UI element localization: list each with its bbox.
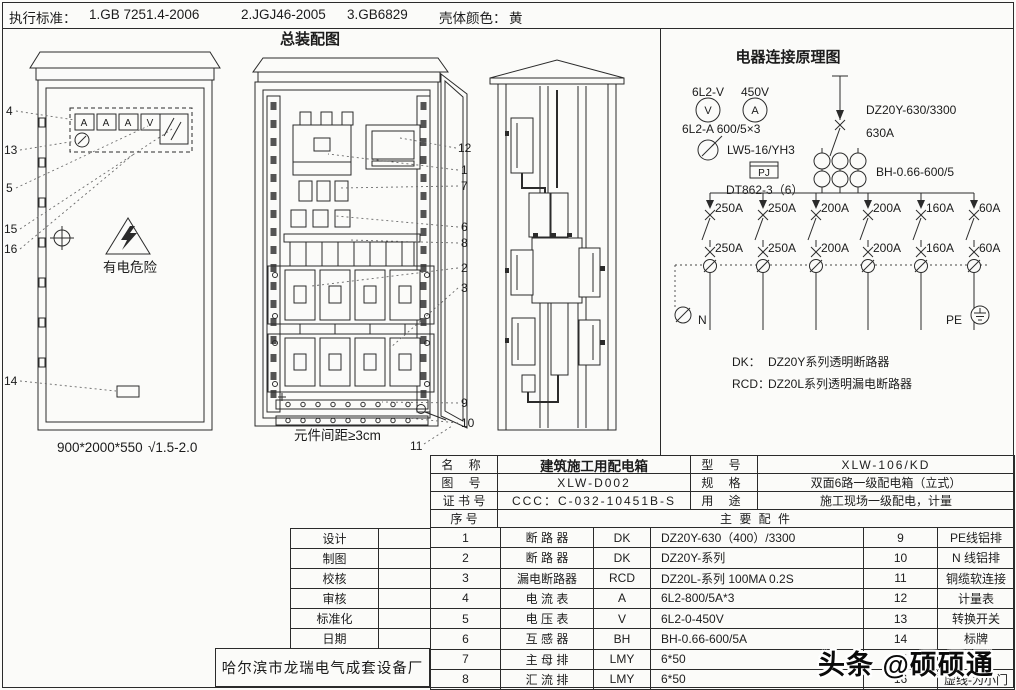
schematic-legend: DK： DZ20Y系列透明断路器 RCD： DZ20L系列透明漏电断路器 [732,354,912,391]
part-no2: 10 [864,548,938,568]
n-label: N [698,313,707,327]
engineering-drawing-sheet: 执行标准： 1.GB 7251.4-2006 2.JGJ46-2005 3.GB… [0,0,1016,690]
main-breaker [293,125,351,175]
title-block-info: 名 称 建筑施工用配电箱 型 号 XLW-106/KD 图 号 XLW-D002… [430,455,1015,510]
branch-rating-bottom: 250A [768,241,796,255]
callout-3: 3 [461,281,468,295]
changeover-switch-model: LW5-16/YH3 [727,143,795,157]
assembly-drawing: 总装配图 A A A V [0,28,660,455]
drawing-number: XLW-D002 [498,474,691,492]
part-no: 5 [431,609,501,629]
energy-meter-model: DT862-3（6） [726,183,803,197]
part-no: 7 [431,650,501,670]
admin-label: 标准化 [291,609,379,629]
info-label: 型 号 [691,456,758,474]
voltmeter-letter: V [704,105,712,117]
branch-3: 200A 200A [808,193,849,330]
product-name: 建筑施工用配电箱 [498,456,691,474]
callouts-left: 4 13 5 15 16 14 [4,104,172,391]
usage: 施工现场一级配电，计量 [758,492,1015,510]
branch-rating-top: 250A [768,201,796,215]
part-spec: DZ20Y-系列 [651,548,864,568]
component-spacing-note: 元件间距≥3cm [294,428,381,443]
part-no2: 11 [864,569,938,589]
standard-3: 3.GB6829 [347,7,408,22]
part-code: V [594,609,651,629]
part-code: DK [594,528,651,548]
part-spec: 6L2-800/5A*3 [651,589,864,609]
part-name2: 计量表 [938,589,1015,609]
main-breaker-model: DZ20Y-630/3300 [866,103,957,117]
branch-4: 200A 200A [860,193,901,330]
part-no: 8 [431,670,501,690]
branch-rating-top: 250A [715,201,743,215]
part-no: 6 [431,629,501,649]
branch-rating-bottom: 200A [873,241,901,255]
main-breaker-rating: 630A [866,126,894,140]
branch-rating-top: 160A [926,201,954,215]
part-no2: 12 [864,589,938,609]
info-label: 规 格 [691,474,758,492]
part-spec: 6L2-0-450V [651,609,864,629]
voltmeter-label: V [147,118,154,129]
door-lock [50,226,74,250]
branch-rating-top: 200A [821,201,849,215]
part-name2: 转换开关 [938,609,1015,629]
callout-7: 7 [461,179,468,193]
part-name2: PE线铝排 [938,528,1015,548]
branch-rating-bottom: 160A [926,241,954,255]
admin-label: 制图 [291,549,379,569]
admin-value [379,549,431,569]
part-spec: DZ20Y-630（400）/3300 [651,528,864,548]
part-no: 4 [431,589,501,609]
callout-6: 6 [461,220,468,234]
part-code: LMY [594,670,651,690]
admin-label: 日期 [291,629,379,649]
part-name: 电 流 表 [501,589,594,609]
admin-label: 审核 [291,589,379,609]
assembly-title: 总装配图 [280,30,340,48]
part-name: 汇 流 排 [501,670,594,690]
signature-block: 设计 制图 校核 审核 标准化 日期 [290,528,431,649]
callout-15: 15 [4,222,18,236]
legend-rcd-value: DZ20L系列透明漏电断路器 [768,376,912,391]
voltmeter-model: 6L2-V [692,85,724,99]
ammeter-3-label: A [125,118,132,129]
standards-label: 执行标准： [9,7,77,27]
branch-rating-bottom: 60A [979,241,1000,255]
part-code: BH [594,629,651,649]
busbar-comb [284,234,420,242]
sheet-thickness: √1.5-2.0 [148,440,197,455]
branch-2: 250A 250A [755,193,796,330]
model-number: XLW-106/KD [758,456,1015,474]
ammeter-2-label: A [103,118,110,129]
admin-value [379,589,431,609]
schematic-title: 电器连接原理图 [735,48,840,66]
specification: 双面6路一级配电箱（立式） [758,474,1015,492]
standard-2: 2.JGJ46-2005 [241,7,326,22]
admin-value [379,529,431,549]
ammeter-1-label: A [81,118,88,129]
electrical-schematic: 电器连接原理图 6L2-V 450V V A 6L2-A 600/5×3 LW5… [660,28,1016,455]
branch-rating-top: 60A [979,201,1000,215]
callout-10: 10 [461,416,475,430]
part-no: 1 [431,528,501,548]
nameplate [117,386,139,397]
cabinet-dimensions: 900*2000*550 [57,440,143,455]
callout-14: 14 [4,374,18,388]
part-name: 电 压 表 [501,609,594,629]
part-name: 断 路 器 [501,528,594,548]
admin-value [379,569,431,589]
branch-rating-bottom: 200A [821,241,849,255]
shell-color-value: 黄 [509,7,523,27]
standards-header: 执行标准： 1.GB 7251.4-2006 2.JGJ46-2005 3.GB… [3,3,1013,29]
panel-meters-symbols: 6L2-V 450V V A 6L2-A 600/5×3 LW5-16/YH3 … [682,85,803,197]
part-no: 3 [431,569,501,589]
branch-rating-top: 200A [873,201,901,215]
electric-danger-sign [106,218,150,254]
warning-text: 有电危险 [103,260,157,275]
callout-1: 1 [461,163,468,177]
callout-16: 16 [4,242,18,256]
admin-label: 校核 [291,569,379,589]
neutral-earth-terminals: N PE [675,306,989,327]
part-code: DK [594,548,651,568]
callout-11: 11 [410,439,423,453]
pe-bar [276,400,428,409]
callout-4: 4 [6,104,13,118]
ct-model: BH-0.66-600/5 [876,165,954,179]
parts-table-header: 序 号 主 要 配 件 [430,509,1015,528]
callout-13: 13 [4,143,18,157]
admin-value [379,609,431,629]
pe-label: PE [946,313,962,327]
admin-label: 设计 [291,529,379,549]
ammeter-model: 6L2-A 600/5×3 [682,122,761,136]
part-no: 2 [431,548,501,568]
part-code: LMY [594,650,651,670]
shell-color-label: 壳体颜色： [439,7,507,27]
info-label: 图 号 [431,474,498,492]
info-label: 用 途 [691,492,758,510]
outgoing-branches: 250A 250A 250A 250A 200A [675,193,1000,330]
cabinet-side-view [490,60,624,430]
callout-8: 8 [461,236,468,250]
n-bar [276,416,428,425]
info-label: 证 书 号 [431,492,498,510]
certificate-number: CCC：C-032-10451B-S [498,492,691,510]
admin-value [379,629,431,649]
info-label: 名 称 [431,456,498,474]
callout-5: 5 [6,181,13,195]
legend-dk-value: DZ20Y系列透明断路器 [768,354,889,369]
callout-9: 9 [461,396,468,410]
ammeter-letter: A [751,105,759,117]
callout-12: 12 [458,141,472,155]
voltmeter-range: 450V [741,85,769,99]
cabinet-open-view: 元件间距≥3cm 11 [253,58,467,453]
part-name: 漏电断路器 [501,569,594,589]
part-name: 主 母 排 [501,650,594,670]
part-code: A [594,589,651,609]
seq-header: 序 号 [431,509,498,528]
branch-1: 250A 250A [702,193,743,330]
cabinet-front-view: A A A V 有电危险 900*2000*550 √1.5-2.0 [30,52,220,455]
part-spec: DZ20L-系列 100MA 0.2S [651,569,864,589]
legend-dk-key: DK： [732,355,761,369]
callout-2: 2 [461,261,468,275]
part-name2: 铜缆软连接 [938,569,1015,589]
part-name: 互 感 器 [501,629,594,649]
part-name: 断 路 器 [501,548,594,568]
part-no2: 13 [864,609,938,629]
part-code: RCD [594,569,651,589]
branch-5: 160A 160A [913,193,954,330]
pj-label: PJ [758,168,770,179]
parts-header: 主 要 配 件 [498,509,1015,528]
part-name2: N 线铝排 [938,548,1015,568]
legend-rcd-key: RCD： [732,377,770,391]
branch-rating-bottom: 250A [715,241,743,255]
watermark: 头条 @硕硕通 [818,643,994,682]
standard-1: 1.GB 7251.4-2006 [89,7,199,22]
manufacturer-name: 哈尔滨市龙瑞电气成套设备厂 [215,648,430,687]
part-no2: 9 [864,528,938,548]
